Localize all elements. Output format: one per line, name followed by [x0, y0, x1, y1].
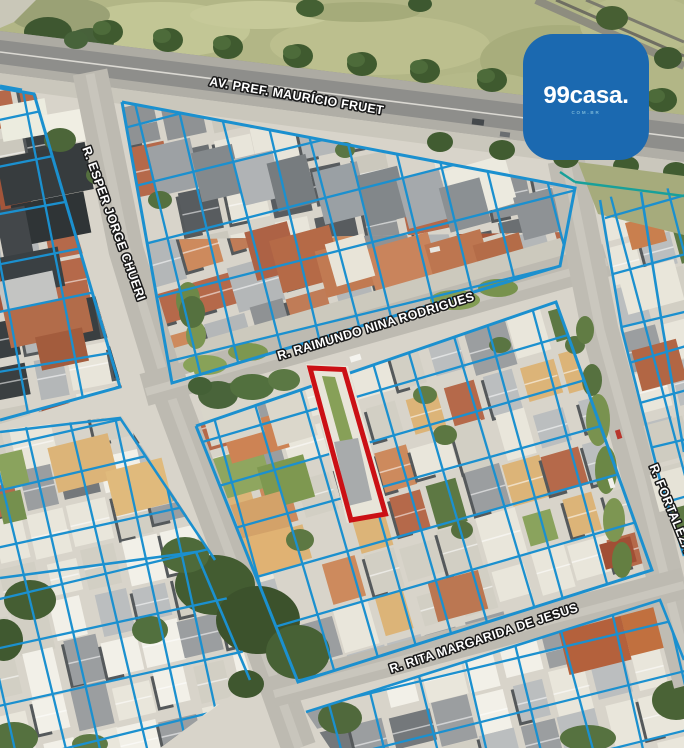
- svg-text:COM.BR: COM.BR: [571, 110, 600, 115]
- svg-text:99casa.: 99casa.: [543, 82, 628, 109]
